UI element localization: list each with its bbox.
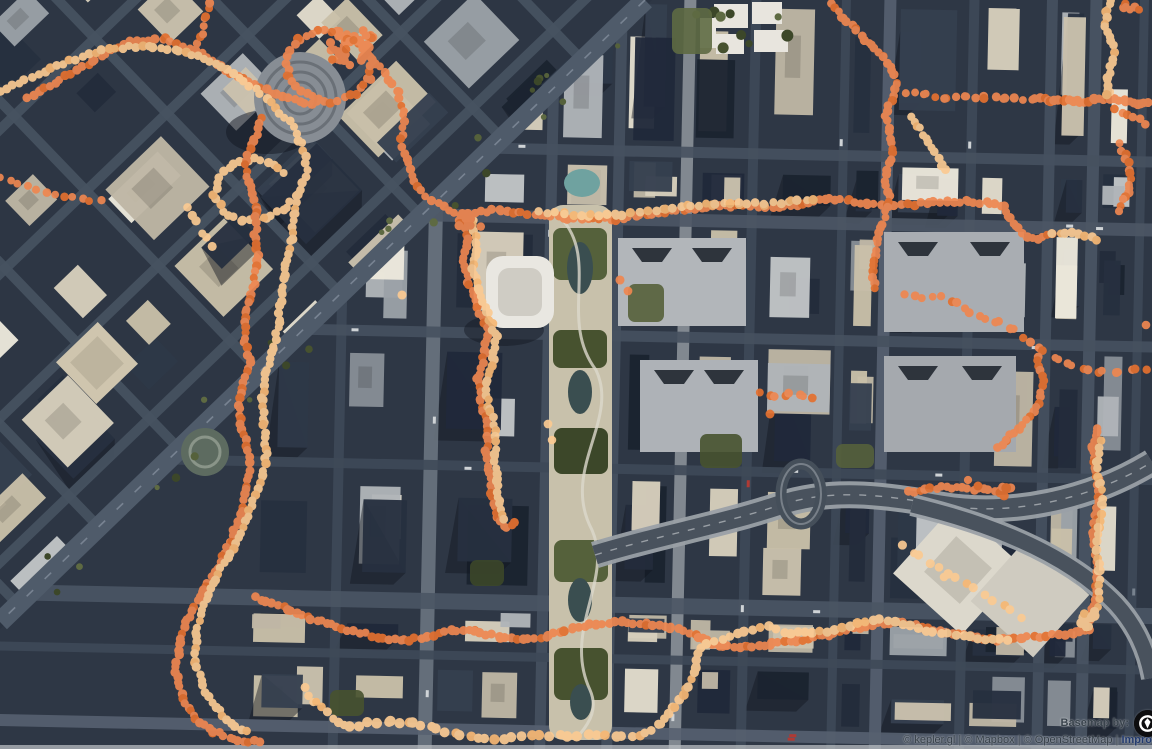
- kepler-map-screenshot: { "window": {"width": 1152, "height": 74…: [0, 0, 1152, 749]
- mapbox-attribution-link[interactable]: © Mapbox: [964, 734, 1014, 746]
- attribution-row-links: © kepler.gl | © Mapbox | © OpenStreetMap…: [903, 733, 1152, 747]
- kepler-attribution-link[interactable]: © kepler.gl: [903, 734, 955, 746]
- attribution-row-basemap: Basemap by:: [1061, 711, 1152, 735]
- basemap-by-label: Basemap by:: [1061, 717, 1129, 729]
- map-attribution: Basemap by: © kepler.gl | © Mapbox | © O…: [903, 711, 1152, 747]
- mapbox-logo-icon[interactable]: [1134, 710, 1152, 737]
- attribution-separator: |: [1015, 734, 1024, 746]
- satellite-map-canvas[interactable]: [0, 0, 1152, 749]
- attribution-separator: |: [955, 734, 964, 746]
- osm-attribution-link[interactable]: © OpenStreetMap: [1024, 734, 1113, 746]
